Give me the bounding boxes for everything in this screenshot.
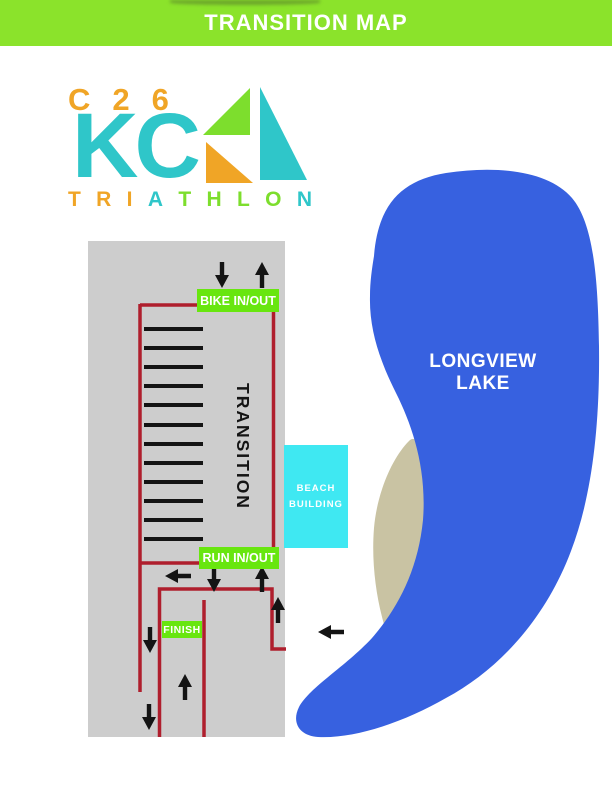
transition-zone-label: TRANSITION <box>235 383 253 489</box>
logo-letter: T <box>68 189 81 210</box>
route-arrow-left-icon <box>318 625 344 639</box>
header-bar: TRANSITION MAP <box>0 0 612 46</box>
logo-letter: H <box>206 189 221 210</box>
logo-letter: R <box>96 189 111 210</box>
logo-letter: L <box>237 189 250 210</box>
lake-label: LONGVIEW LAKE <box>410 351 556 395</box>
beach-building-label: BEACH BUILDING <box>284 481 348 511</box>
page-title: TRANSITION MAP <box>204 10 407 36</box>
logo-letter: T <box>178 189 191 210</box>
transition-map-page: TRANSITION MAP C26 KC TRIATHLON BIKE IN/… <box>0 0 612 792</box>
top-edge-artifact <box>170 0 320 5</box>
run-inout-label: RUN IN/OUT <box>199 547 279 569</box>
bike-inout-label: BIKE IN/OUT <box>197 289 279 312</box>
logo-letter: A <box>148 189 163 210</box>
logo-letter: O <box>265 189 281 210</box>
transition-area-ground <box>88 241 285 737</box>
logo-triangle-teal <box>260 87 307 180</box>
logo-triathlon-text: TRIATHLON <box>68 189 312 210</box>
beach-building: BEACH BUILDING <box>284 445 348 548</box>
logo-letter: I <box>127 189 133 210</box>
logo-kc-text: KC <box>72 106 197 187</box>
logo-letter: N <box>297 189 312 210</box>
finish-label: FINISH <box>162 621 202 638</box>
logo-triangle-orange <box>206 142 253 183</box>
beach-shore-shape <box>373 439 430 650</box>
logo-triangle-green <box>203 88 250 135</box>
